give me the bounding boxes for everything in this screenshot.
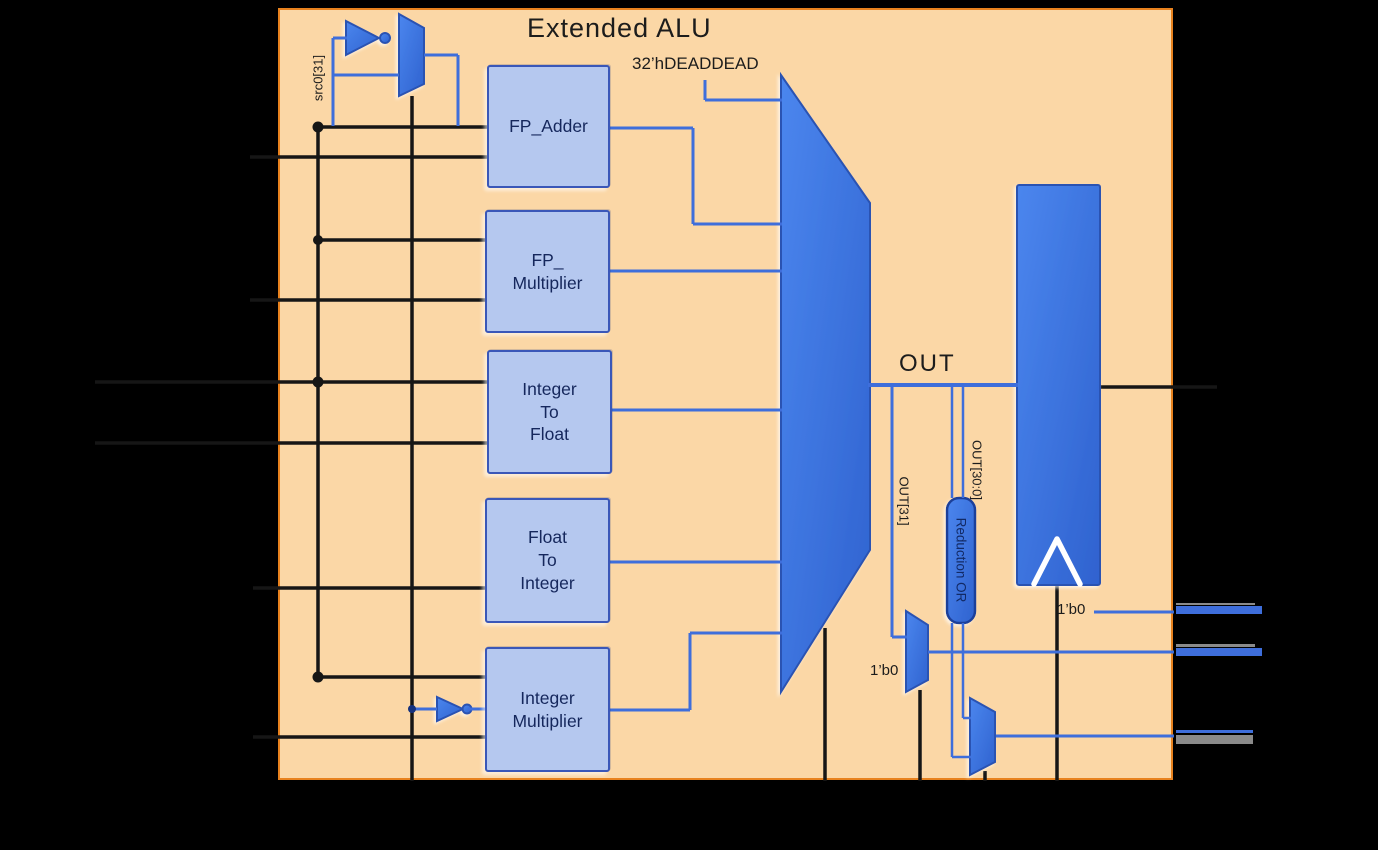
unit-integer-multiplier: Integer Multiplier — [485, 647, 610, 772]
junction-dot — [408, 705, 416, 713]
constant-label: 32’hDEADDEAD — [632, 54, 759, 74]
unit-float-to-integer: Float To Integer — [485, 498, 610, 623]
tie-low-label-mux: 1’b0 — [870, 662, 898, 679]
unit-fp-multiplier: FP_ Multiplier — [485, 210, 610, 333]
out31-label: OUT[31] — [897, 476, 912, 525]
output-bar — [1176, 648, 1262, 656]
alu-block-diagram: FP_Adder FP_ Multiplier Integer To Float… — [0, 0, 1378, 850]
output-register — [1017, 185, 1100, 585]
output-bar-shadow — [1176, 735, 1253, 744]
flag-mux-2 — [970, 698, 995, 775]
output-bar-shadow — [1176, 644, 1255, 647]
junction-dot — [313, 377, 324, 388]
flag-mux-1 — [906, 611, 928, 692]
diagram-title: Extended ALU — [527, 13, 712, 44]
junction-dot — [313, 672, 324, 683]
inverter-icon — [346, 21, 379, 55]
reduction-or-label: Reduction OR — [954, 518, 969, 603]
inverter-icon — [437, 697, 463, 721]
src0-bit-label: src0[31] — [311, 55, 326, 101]
out30-label: OUT[30:0] — [970, 440, 985, 500]
external-output-bars — [1176, 603, 1262, 744]
output-bar — [1176, 730, 1253, 733]
schematic-layer — [0, 0, 1378, 850]
out-label: OUT — [899, 350, 956, 378]
src-select-mux — [399, 14, 424, 96]
junction-dot — [313, 235, 323, 245]
junction-dot — [313, 122, 324, 133]
unit-integer-to-float: Integer To Float — [487, 350, 612, 474]
output-bar — [1176, 606, 1262, 614]
junction-dots — [313, 122, 417, 714]
output-bar-shadow — [1176, 603, 1255, 605]
result-mux — [781, 75, 870, 692]
unit-fp-adder: FP_Adder — [487, 65, 610, 188]
tie-low-label-flag: 1’b0 — [1057, 601, 1085, 618]
inverter-bubble-icon — [380, 33, 390, 43]
